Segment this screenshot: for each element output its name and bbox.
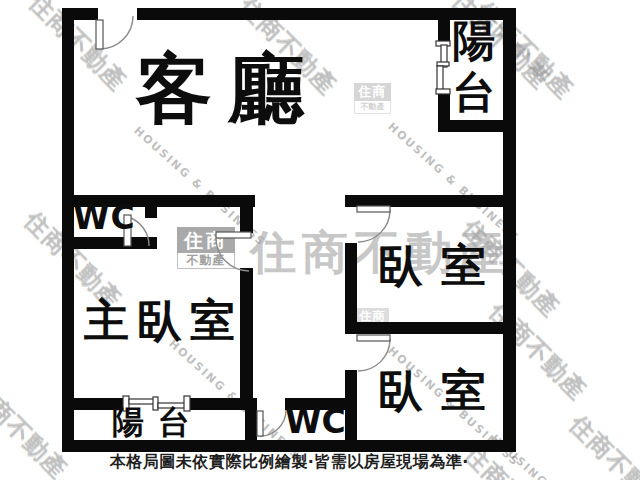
window-icons (123, 41, 450, 411)
entry-door-leaf-icon (96, 20, 103, 49)
wc-top-door-leaf-icon (124, 215, 131, 246)
disclaimer-text: 本格局圖未依實際比例繪製‧皆需以房屋現場為準‧ (110, 452, 469, 473)
bedroom-1-door-leaf-icon (357, 206, 390, 212)
master-bedroom-door-leaf-icon (216, 232, 251, 238)
floorplan-drawing (0, 0, 640, 480)
bedroom-1-door-icon (358, 210, 390, 242)
entry-door-icon (100, 16, 133, 49)
wc-bottom-door-leaf-icon (257, 411, 263, 436)
wc-bottom-door-icon (260, 410, 286, 436)
master-bedroom-door-icon (216, 238, 249, 271)
balcony-bottom-window-icon (123, 396, 190, 411)
floorplan-canvas: 住商不動產 住商不動產 住商不動產 住商不動產 住商不動產 住商不動產 住商不動… (0, 0, 640, 480)
bedroom-2-door-leaf-icon (357, 335, 390, 341)
bedroom-2-door-icon (358, 339, 390, 371)
balcony-top-window-icon (436, 41, 450, 94)
